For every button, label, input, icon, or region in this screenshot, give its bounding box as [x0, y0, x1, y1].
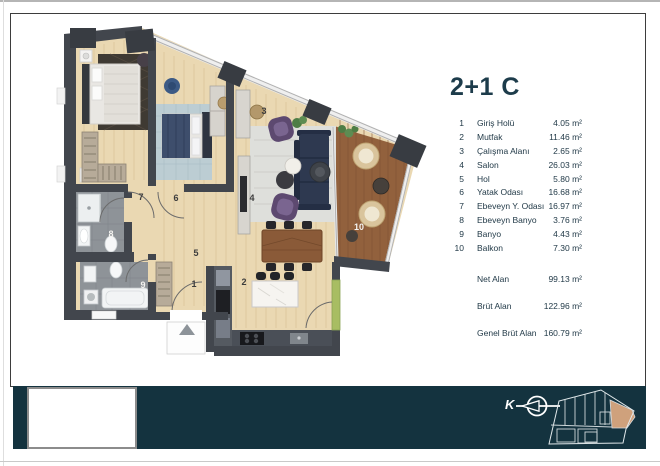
area-summary-row: Genel Brüt Alan 160.79 m²: [477, 319, 582, 346]
room-name: Giriş Holü: [477, 118, 514, 128]
room-name: Yatak Odası: [477, 187, 523, 197]
room-number: 4: [451, 160, 464, 170]
page-bottom-edge: [0, 461, 660, 462]
bedroom-wardrobe: [210, 86, 225, 136]
room-area: 4.05 m²: [514, 118, 582, 128]
summary-label: Genel Brüt Alan: [477, 328, 537, 338]
room-number: 9: [451, 229, 464, 239]
area-summary: Net Alan 99.13 m² Brüt Alan 122.96 m² Ge…: [477, 265, 582, 346]
room-area: 16.97 m²: [544, 201, 582, 211]
room-legend-row: 6 Yatak Odası 16.68 m²: [451, 187, 582, 201]
room-name: Ebeveyn Y. Odası: [477, 201, 544, 211]
summary-label: Net Alan: [477, 274, 509, 284]
room-number: 7: [451, 201, 464, 211]
room-area: 16.68 m²: [523, 187, 582, 197]
room-number: 3: [451, 146, 464, 156]
room-legend-row: 8 Ebeveyn Banyo 3.76 m²: [451, 215, 582, 229]
hall-cabinet: [156, 262, 172, 306]
room-legend-row: 2 Mutfak 11.46 m²: [451, 132, 582, 146]
kitchen-island: [252, 272, 298, 307]
room-name: Banyo: [477, 229, 501, 239]
tv-unit: [238, 156, 250, 234]
summary-label: Brüt Alan: [477, 301, 512, 311]
building-key-plan-icon: [545, 386, 645, 448]
balcony-door: [332, 280, 340, 330]
room-number: 1: [451, 118, 464, 128]
summary-value: 99.13 m²: [548, 274, 582, 284]
room-legend-row: 3 Çalışma Alanı 2.65 m²: [451, 146, 582, 160]
room-number: 2: [451, 132, 464, 142]
bistro-table: [310, 162, 330, 182]
room-area: 5.80 m²: [490, 174, 582, 184]
logo-placeholder-box: [27, 387, 137, 449]
entry-door: [167, 310, 205, 354]
summary-value: 160.79 m²: [544, 328, 582, 338]
room-name: Hol: [477, 174, 490, 184]
room-number: 5: [451, 174, 464, 184]
area-summary-row: Net Alan 99.13 m²: [477, 265, 582, 292]
room-area: 11.46 m²: [503, 132, 582, 142]
room-legend-row: 1 Giriş Holü 4.05 m²: [451, 118, 582, 132]
room-number: 10: [451, 243, 464, 253]
room-name: Mutfak: [477, 132, 503, 142]
unit-type-title: 2+1 C: [450, 73, 520, 102]
room-name: Ebeveyn Banyo: [477, 215, 537, 225]
room-legend-row: 7 Ebeveyn Y. Odası 16.97 m²: [451, 201, 582, 215]
room-area: 4.43 m²: [501, 229, 582, 239]
room-legend-row: 10 Balkon 7.30 m²: [451, 243, 582, 257]
floor-plan-page: 12345678910 2+1 C 1 Giriş Holü 4.05 m² 2…: [0, 0, 660, 466]
bedroom-round-chair: [164, 78, 180, 94]
bedroom-bed: [162, 112, 212, 158]
room-area: 2.65 m²: [529, 146, 582, 156]
area-summary-row: Brüt Alan 122.96 m²: [477, 292, 582, 319]
room-number: 6: [451, 187, 464, 197]
room-name: Balkon: [477, 243, 503, 253]
room-legend-row: 9 Banyo 4.43 m²: [451, 229, 582, 243]
room-area: 26.03 m²: [499, 160, 582, 170]
summary-value: 122.96 m²: [544, 301, 582, 311]
room-area: 3.76 m²: [537, 215, 582, 225]
room-name: Salon: [477, 160, 499, 170]
compass-north-label: K: [505, 398, 514, 411]
room-legend-table: 1 Giriş Holü 4.05 m² 2 Mutfak 11.46 m² 3…: [451, 118, 582, 257]
room-area: 7.30 m²: [503, 243, 582, 253]
room-legend-row: 4 Salon 26.03 m²: [451, 160, 582, 174]
room-legend-row: 5 Hol 5.80 m²: [451, 174, 582, 188]
room-name: Çalışma Alanı: [477, 146, 529, 156]
room-number: 8: [451, 215, 464, 225]
